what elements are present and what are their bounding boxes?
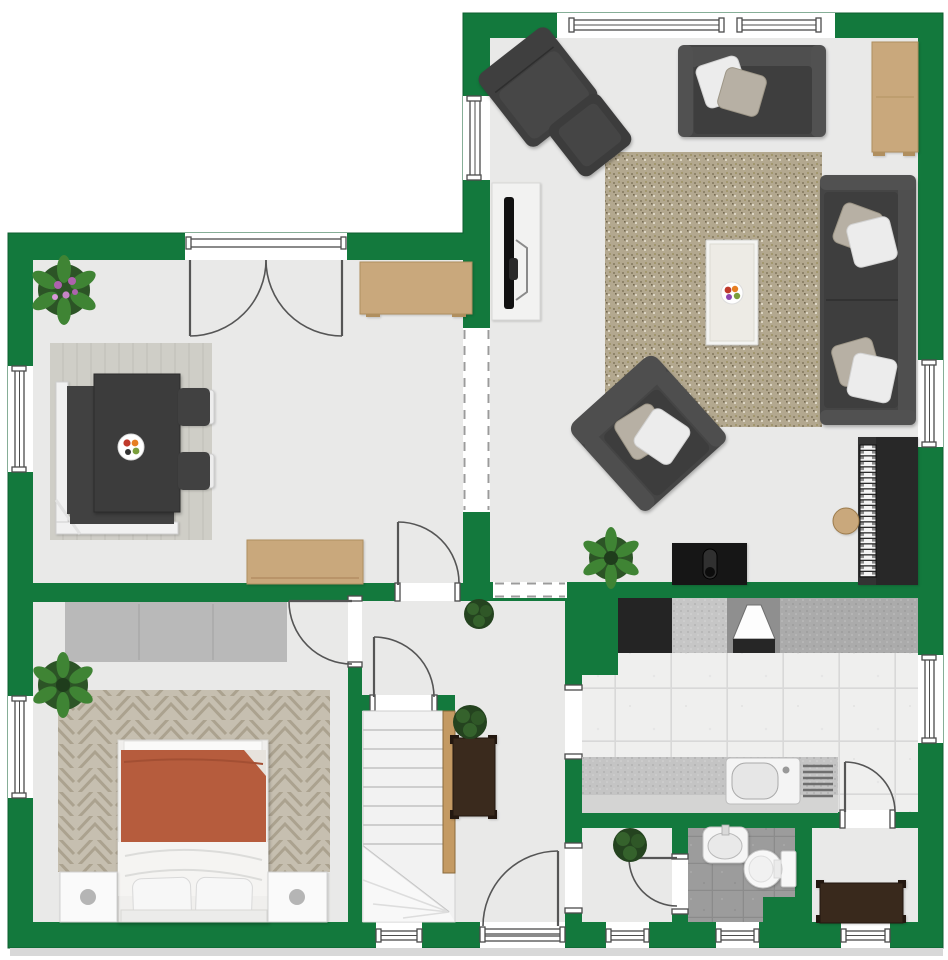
wash-basin xyxy=(703,825,748,863)
hall-living-passage xyxy=(493,582,567,598)
storage-south-window xyxy=(841,922,890,948)
living-west-window xyxy=(463,96,490,180)
console-table xyxy=(450,735,497,819)
fruit-bowl xyxy=(118,434,144,460)
bedroom-west-window xyxy=(8,696,33,798)
dining-chair xyxy=(178,452,214,490)
sofa-east xyxy=(820,175,916,425)
hall-plant xyxy=(453,705,487,739)
storage-room xyxy=(816,880,906,923)
living-north-windows xyxy=(557,13,835,38)
kitchen-east-window xyxy=(918,655,943,743)
dining-living-passage xyxy=(463,328,490,512)
living-east-window xyxy=(918,360,943,447)
kitchen-sink xyxy=(726,758,800,804)
kitchen-counter-south xyxy=(582,757,838,813)
tv xyxy=(504,197,514,309)
utility-room xyxy=(613,828,647,862)
utility-south-window xyxy=(606,922,649,948)
hall-south-window xyxy=(376,922,422,948)
floor-plan xyxy=(0,0,948,960)
dining-chair xyxy=(178,388,214,426)
nightstand xyxy=(60,872,117,922)
double-bed xyxy=(118,740,268,922)
toilet xyxy=(744,850,796,888)
hall-plant xyxy=(464,599,494,629)
tv-panel xyxy=(492,183,540,320)
sideboard xyxy=(360,262,472,317)
bathroom-south-window xyxy=(716,922,759,948)
dining-table xyxy=(94,374,180,512)
dining-west-window xyxy=(8,366,33,472)
hall-kitchen-passage xyxy=(565,685,582,759)
cooktop xyxy=(618,598,672,653)
desk xyxy=(247,540,363,584)
hall-utility-passage xyxy=(565,843,582,913)
fireplace xyxy=(672,543,747,585)
utility-plant xyxy=(613,828,647,862)
staircase xyxy=(363,711,455,922)
nightstand xyxy=(268,872,327,922)
duvet xyxy=(121,750,266,848)
fruit-bowl xyxy=(721,282,743,304)
bathroom-notch-wall xyxy=(763,897,795,922)
dresser xyxy=(816,880,906,923)
coffee-table xyxy=(706,240,758,345)
wardrobe xyxy=(65,602,287,662)
kitchen-corner-wall xyxy=(582,598,618,675)
sofa-north xyxy=(678,45,826,137)
floor-plan-canvas xyxy=(0,0,948,960)
piano-stool xyxy=(833,508,859,534)
plan-shadow xyxy=(10,948,943,956)
cabinet-northeast xyxy=(872,42,918,156)
bedroom xyxy=(30,602,330,922)
kitchen-counter-north xyxy=(618,598,918,653)
